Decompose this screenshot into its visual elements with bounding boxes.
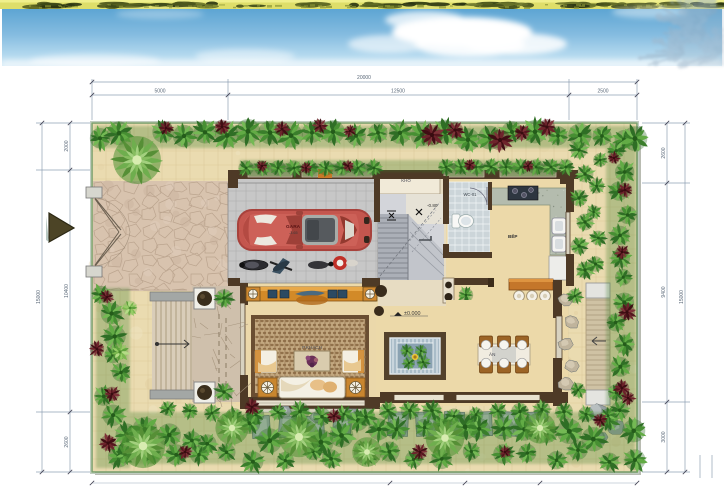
svg-text:3000: 3000 xyxy=(661,431,667,442)
svg-text:P.KHÁCH: P.KHÁCH xyxy=(302,344,322,350)
svg-text:2500: 2500 xyxy=(597,89,608,95)
svg-text:10400: 10400 xyxy=(64,284,70,298)
svg-text:15000: 15000 xyxy=(679,290,685,304)
svg-text:WC-01: WC-01 xyxy=(463,192,477,197)
svg-text:5000: 5000 xyxy=(154,89,165,95)
svg-text:GARA: GARA xyxy=(286,224,301,230)
svg-text:2600: 2600 xyxy=(64,436,70,447)
svg-text:ĂN: ĂN xyxy=(489,351,495,357)
svg-text:2600: 2600 xyxy=(661,147,667,158)
svg-text:-3.65: -3.65 xyxy=(289,231,298,235)
svg-text:BẾP: BẾP xyxy=(508,233,517,239)
svg-text:20000: 20000 xyxy=(357,75,371,81)
svg-text:-0.80: -0.80 xyxy=(427,203,438,208)
svg-text:9400: 9400 xyxy=(661,286,667,297)
svg-text:12500: 12500 xyxy=(391,89,405,95)
svg-text:2000: 2000 xyxy=(64,140,70,151)
svg-text:15000: 15000 xyxy=(36,290,42,304)
